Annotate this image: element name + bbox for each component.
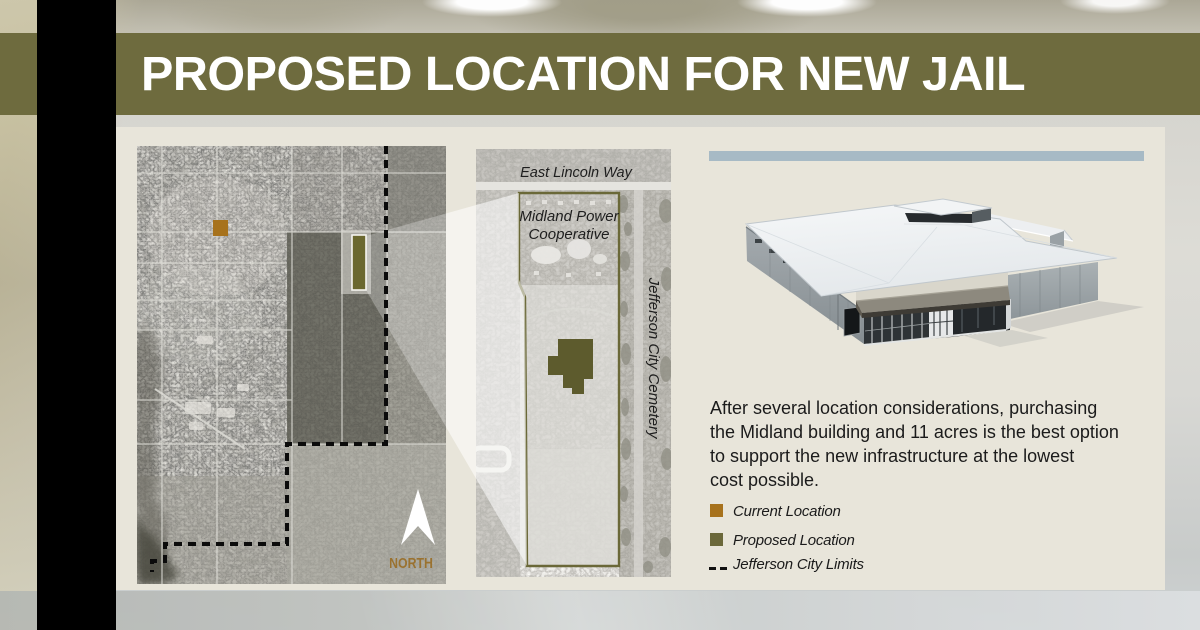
svg-text:NORTH: NORTH xyxy=(389,555,433,571)
